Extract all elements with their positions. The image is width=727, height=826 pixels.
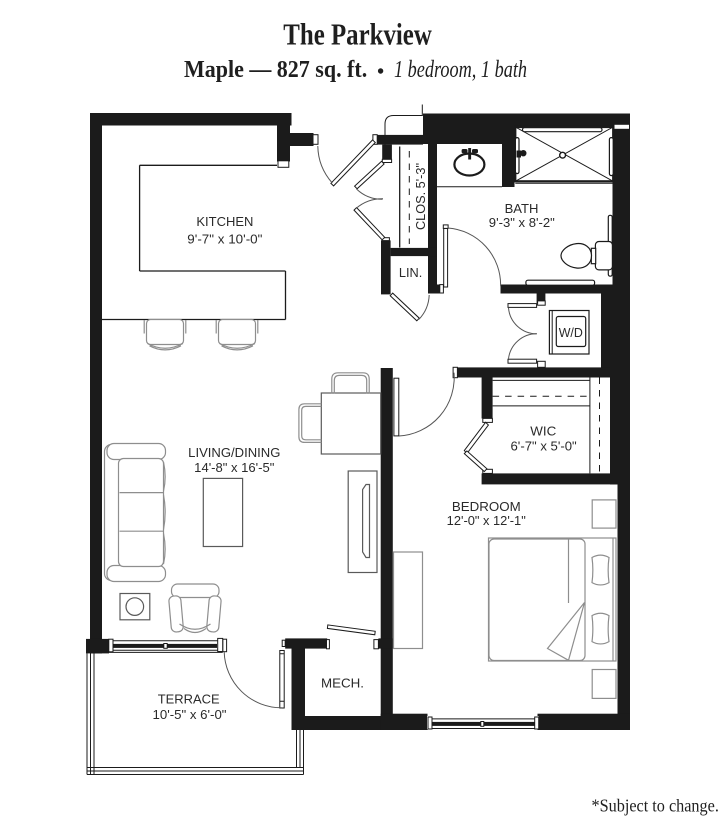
svg-text:BATH: BATH — [505, 201, 539, 216]
svg-text:LIN.: LIN. — [399, 265, 422, 280]
svg-text:9'-7" x 10'-0": 9'-7" x 10'-0" — [187, 233, 262, 247]
svg-text:LIVING/DINING: LIVING/DINING — [188, 445, 280, 460]
svg-text:10'-5" x 6'-0": 10'-5" x 6'-0" — [153, 708, 227, 722]
svg-text:12'-0" x 12'-1": 12'-0" x 12'-1" — [447, 514, 526, 528]
svg-text:14'-8" x 16'-5": 14'-8" x 16'-5" — [194, 461, 274, 475]
svg-text:TERRACE: TERRACE — [158, 692, 220, 707]
svg-text:1 bedroom, 1 bath: 1 bedroom, 1 bath — [394, 57, 527, 83]
svg-text:Maple — 827 sq. ft.: Maple — 827 sq. ft. — [184, 57, 367, 83]
svg-text:*Subject to change.: *Subject to change. — [592, 796, 719, 816]
svg-text:KITCHEN: KITCHEN — [196, 214, 253, 229]
svg-text:W/D: W/D — [559, 325, 583, 340]
svg-text:The Parkview: The Parkview — [283, 17, 432, 52]
svg-text:9'-3" x 8'-2": 9'-3" x 8'-2" — [489, 216, 555, 230]
svg-text:6'-7" x 5'-0": 6'-7" x 5'-0" — [511, 439, 577, 453]
svg-text:CLOS. 5'-3": CLOS. 5'-3" — [413, 163, 428, 230]
svg-text:WIC: WIC — [530, 423, 556, 438]
svg-text:MECH.: MECH. — [321, 676, 364, 691]
svg-text:BEDROOM: BEDROOM — [452, 499, 521, 514]
